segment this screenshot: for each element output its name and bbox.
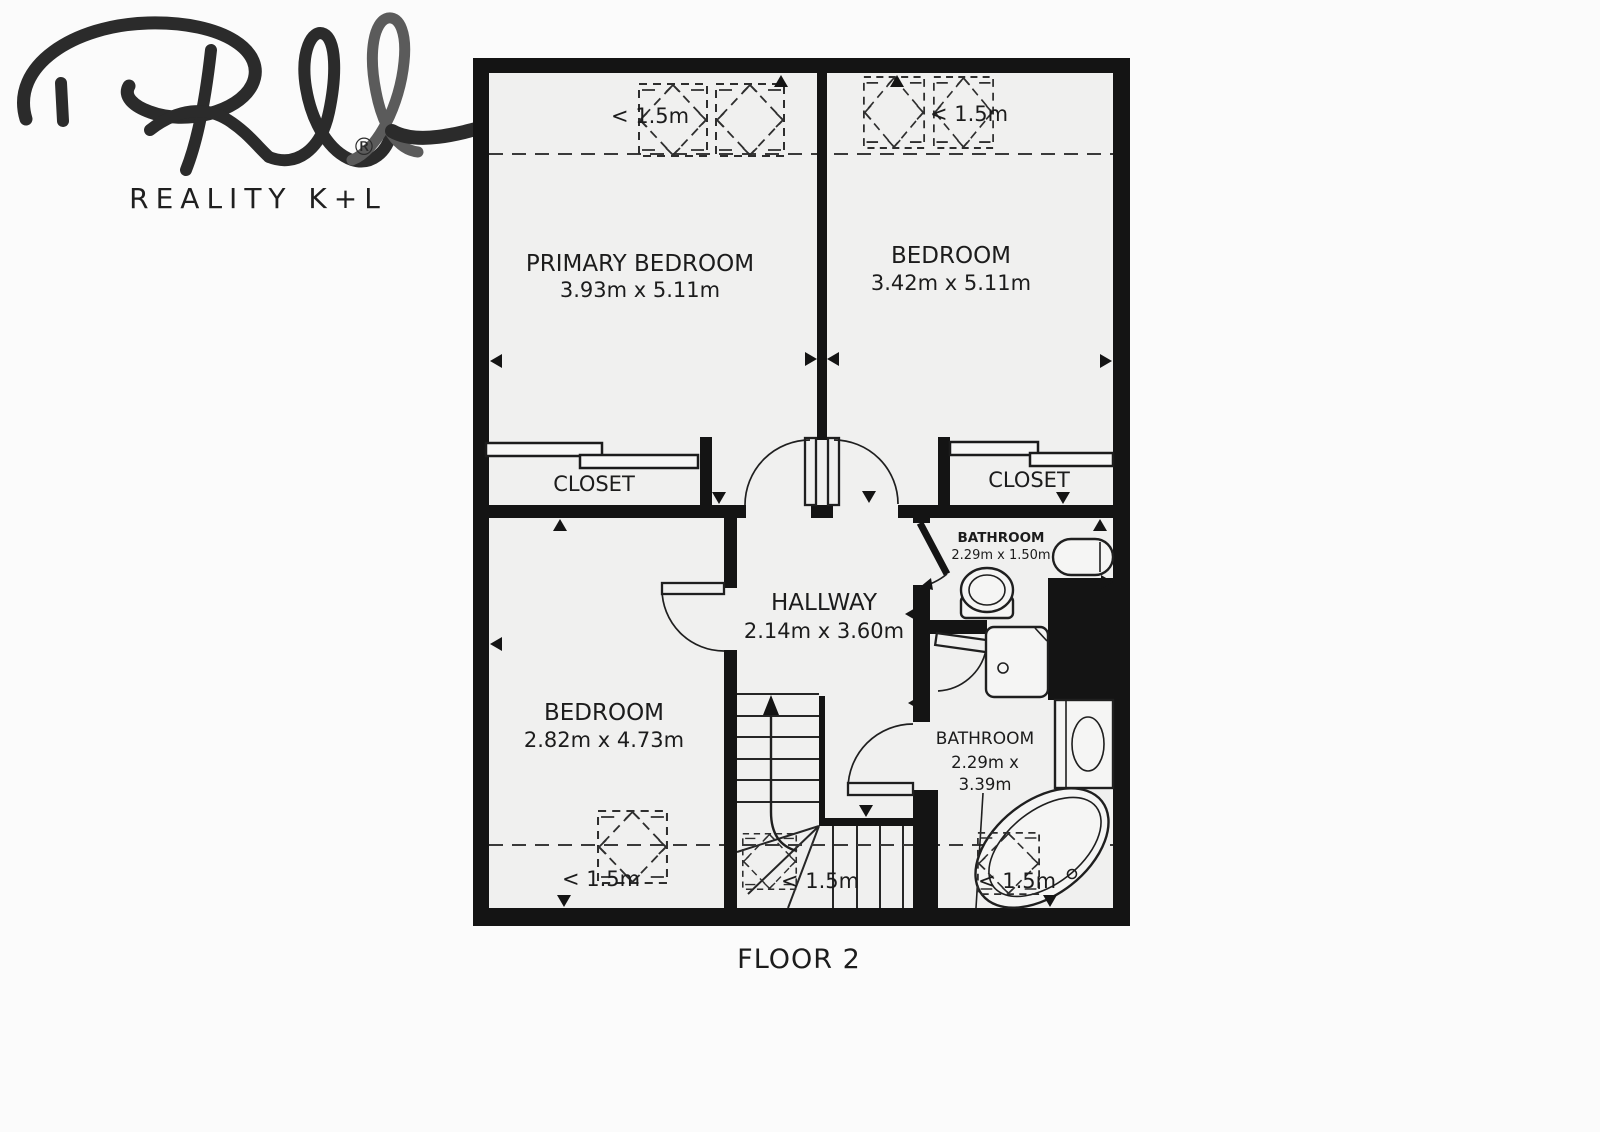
low-ceiling-label: < 1.5m — [611, 104, 689, 128]
label-bathroom-bottom: BATHROOM — [936, 729, 1034, 749]
wall-mid-center — [811, 505, 833, 518]
label-bedroom-bottom: BEDROOM — [544, 700, 664, 726]
logo: ® REALITY K+L — [24, 18, 520, 215]
floor-title: FLOOR 2 — [737, 944, 861, 975]
floorplan: PRIMARY BEDROOM 3.93m x 5.11m BEDROOM 3.… — [473, 58, 1131, 975]
wall-hallway-left-upper — [724, 518, 737, 588]
logo-registered-mark: ® — [352, 133, 376, 161]
wall-between-bathrooms — [913, 620, 987, 634]
sliding-door-icon — [1030, 453, 1113, 466]
dims-bathroom-bottom-2: 3.39m — [959, 775, 1012, 794]
floorplan-canvas: ® REALITY K+L — [0, 0, 1600, 1132]
dims-bedroom-top: 3.42m x 5.11m — [871, 271, 1031, 295]
wall-between-bedrooms — [817, 73, 827, 440]
wall-mid-right — [898, 505, 1113, 518]
dims-hallway: 2.14m x 3.60m — [744, 619, 904, 643]
label-hallway: HALLWAY — [771, 590, 878, 616]
sliding-door-icon — [580, 455, 698, 468]
label-closet-right: CLOSET — [988, 468, 1070, 492]
dims-bedroom-bottom: 2.82m x 4.73m — [524, 728, 684, 752]
floorplan-page: ® REALITY K+L — [0, 0, 1600, 1132]
logo-signature-icon — [24, 18, 520, 170]
label-bathroom-top: BATHROOM — [958, 530, 1045, 546]
wall-hallway-right-lower — [913, 790, 938, 908]
sink-icon — [1053, 539, 1113, 575]
dims-bathroom-top: 2.29m x 1.50m — [951, 548, 1050, 563]
low-ceiling-label: < 1.5m — [978, 869, 1056, 893]
low-ceiling-label: < 1.5m — [930, 102, 1008, 126]
label-closet-left: CLOSET — [553, 472, 635, 496]
wall-mid-left — [489, 505, 746, 518]
dims-bathroom-bottom-1: 2.29m x — [951, 753, 1019, 772]
label-bedroom-top: BEDROOM — [891, 243, 1011, 269]
sliding-door-icon — [950, 442, 1038, 455]
low-ceiling-label: < 1.5m — [781, 869, 859, 893]
stair-stringer-wall — [819, 696, 825, 826]
toilet-icon — [961, 568, 1013, 618]
dims-primary-bedroom: 3.93m x 5.11m — [560, 278, 720, 302]
wall-hallway-left-lower — [724, 650, 737, 908]
stair-lower-wall — [819, 818, 913, 826]
washing-machine-icon — [1055, 700, 1113, 788]
logo-brand-text: REALITY K+L — [129, 182, 387, 215]
void-block — [1048, 578, 1113, 700]
shower-icon — [986, 627, 1048, 697]
wall-closet-right — [938, 437, 950, 518]
label-primary-bedroom: PRIMARY BEDROOM — [526, 251, 754, 277]
low-ceiling-label: < 1.5m — [562, 867, 640, 891]
